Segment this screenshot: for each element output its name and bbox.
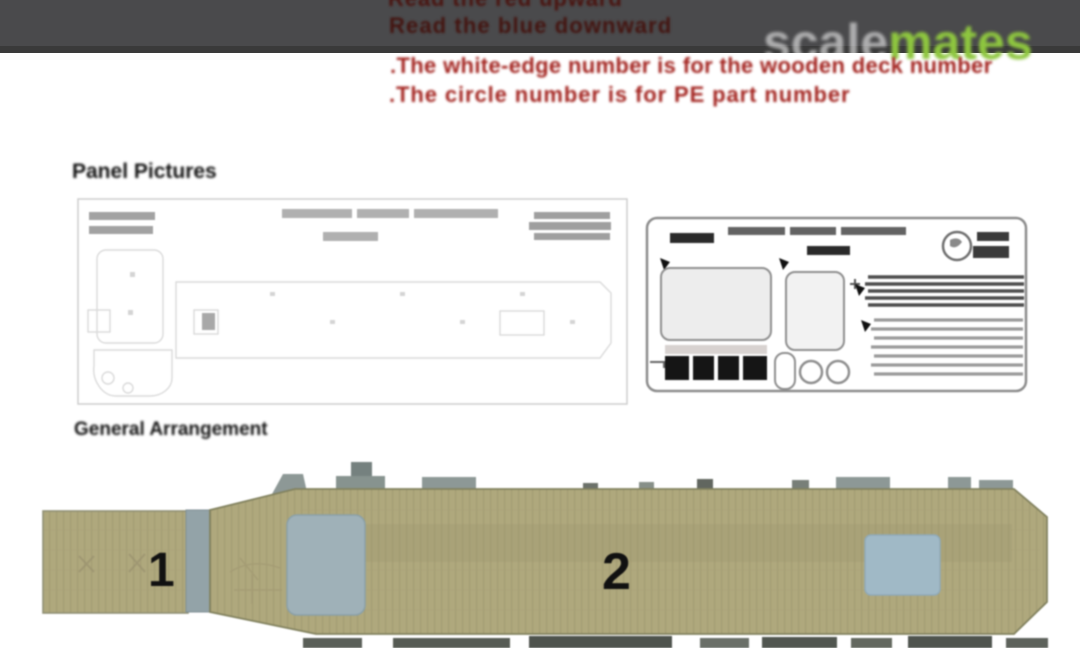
svg-text:1: 1 <box>148 544 175 597</box>
svg-text:2: 2 <box>602 543 631 601</box>
